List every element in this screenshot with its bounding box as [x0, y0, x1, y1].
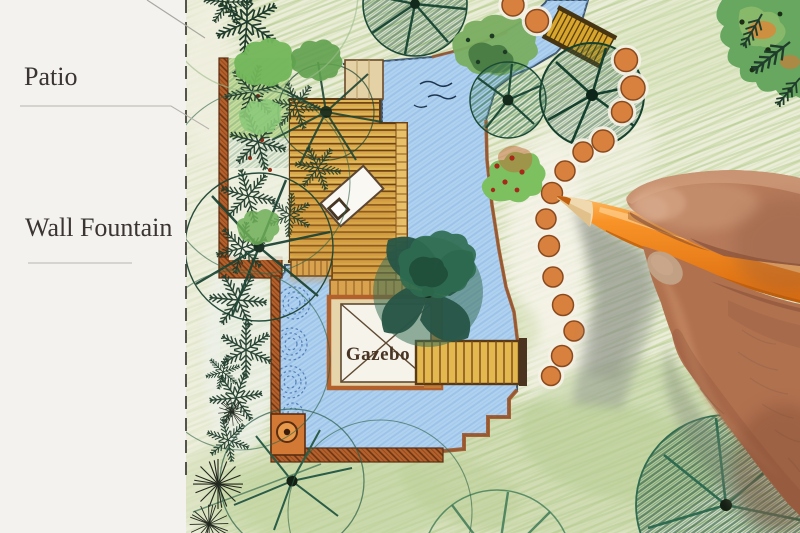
svg-text:Gazebo: Gazebo	[346, 344, 410, 365]
svg-text:Wall Fountain: Wall Fountain	[25, 213, 172, 242]
svg-text:Patio: Patio	[24, 62, 77, 91]
